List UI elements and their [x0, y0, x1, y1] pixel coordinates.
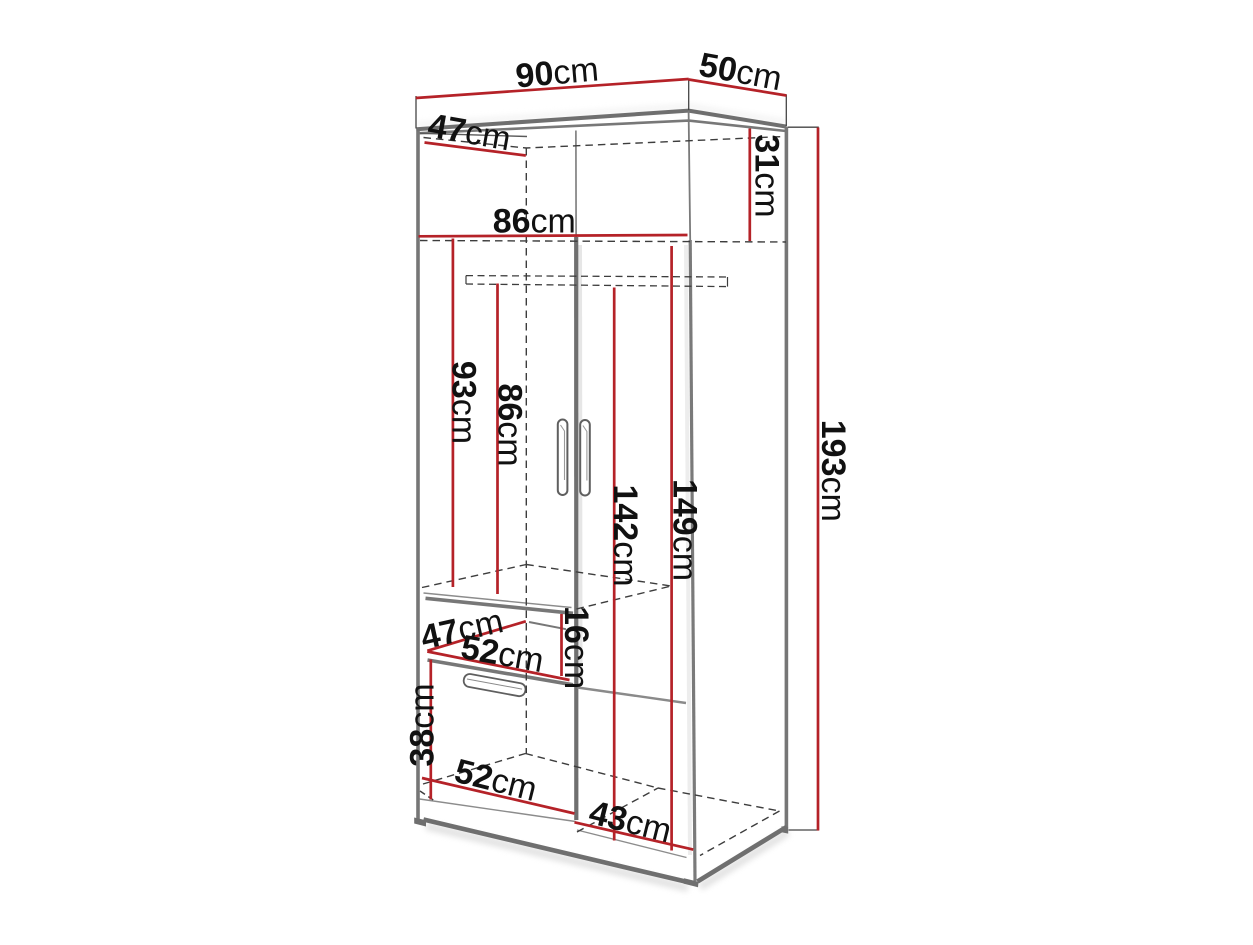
svg-text:142cm: 142cm	[606, 484, 644, 586]
svg-text:93cm: 93cm	[445, 361, 483, 444]
svg-text:193cm: 193cm	[814, 420, 852, 522]
svg-text:16cm: 16cm	[557, 606, 595, 689]
svg-text:90cm: 90cm	[514, 50, 600, 95]
svg-text:86cm: 86cm	[491, 383, 529, 466]
svg-text:149cm: 149cm	[666, 479, 704, 581]
svg-text:86cm: 86cm	[493, 203, 576, 241]
svg-text:31cm: 31cm	[748, 134, 786, 217]
svg-text:38cm: 38cm	[404, 683, 442, 766]
